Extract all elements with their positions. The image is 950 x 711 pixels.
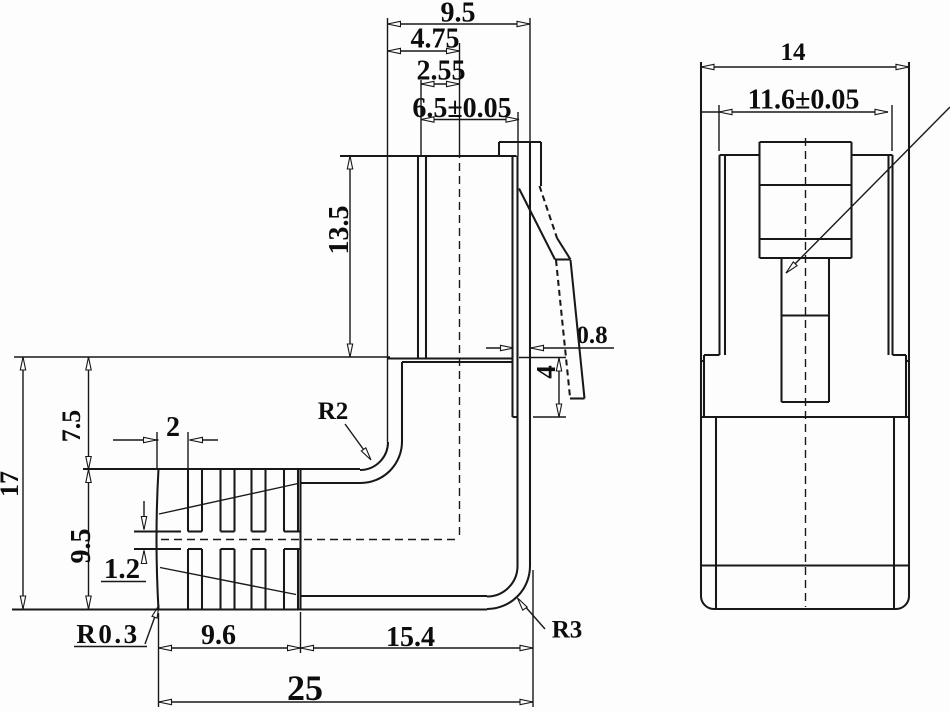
svg-text:11.6±0.05: 11.6±0.05	[748, 85, 860, 116]
svg-text:4: 4	[531, 365, 561, 379]
svg-text:R2: R2	[318, 398, 349, 425]
svg-text:6.5±0.05: 6.5±0.05	[412, 93, 511, 124]
svg-text:13.5: 13.5	[324, 206, 355, 255]
svg-text:4.75: 4.75	[411, 24, 460, 55]
svg-text:17: 17	[0, 471, 24, 497]
svg-text:15.4: 15.4	[386, 622, 435, 653]
svg-text:14: 14	[781, 39, 807, 66]
svg-text:9.6: 9.6	[201, 620, 236, 651]
svg-text:2.55: 2.55	[417, 56, 466, 87]
svg-text:7.5: 7.5	[57, 410, 86, 443]
svg-text:R0.3: R0.3	[76, 619, 139, 649]
svg-text:9.5: 9.5	[66, 529, 97, 564]
svg-text:1.2: 1.2	[104, 553, 140, 585]
svg-text:0.8: 0.8	[576, 322, 607, 349]
svg-text:2: 2	[166, 412, 180, 443]
svg-text:25: 25	[287, 668, 323, 708]
svg-text:R3: R3	[552, 617, 583, 644]
